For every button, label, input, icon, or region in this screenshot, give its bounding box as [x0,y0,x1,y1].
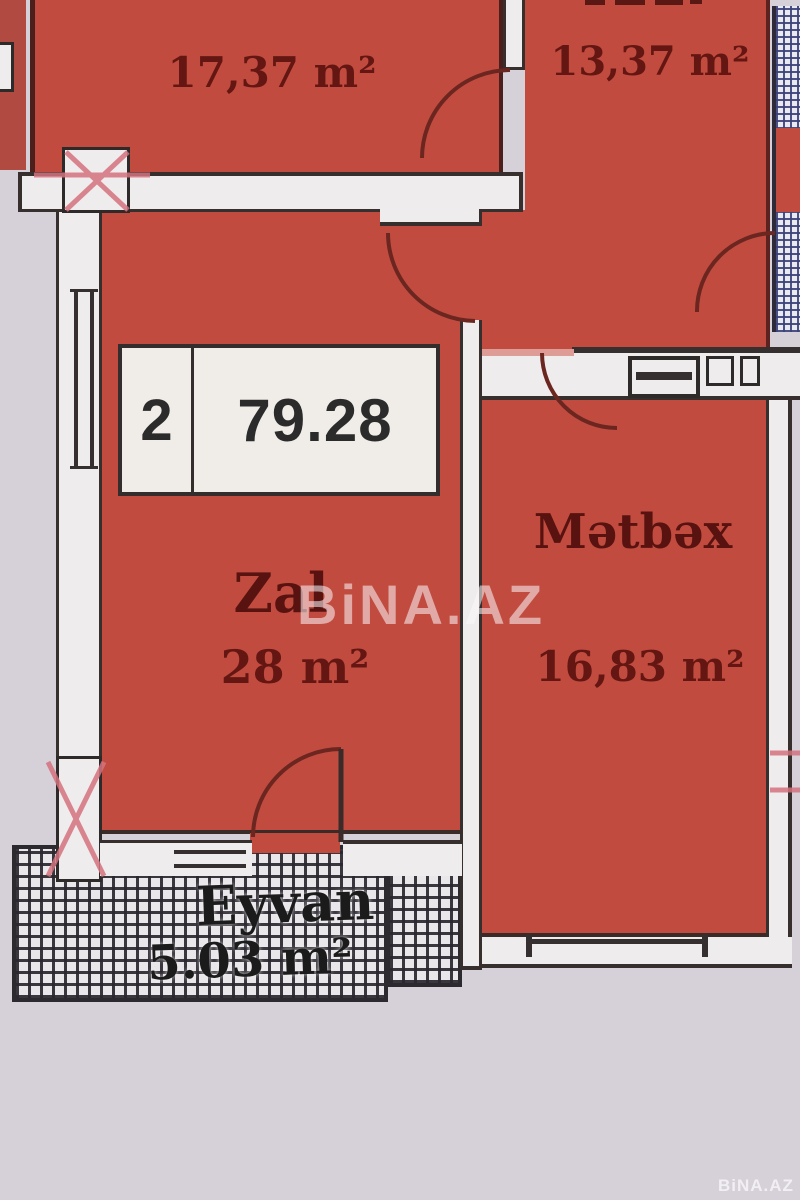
hallway [460,210,770,353]
label-living-area: 28 m² [221,644,370,690]
vent-shaft-small2 [740,356,760,386]
wall-kitchen-top-edge [572,347,800,353]
wall-kitchen-right [766,400,792,968]
window-kitchen-bottom-tick-left [526,933,532,957]
watermark-corner: BiNA.AZ [718,1176,794,1196]
kitchen-door-opening-marker [482,349,574,356]
floor-plan: 17,37 m² 13,37 m² Zal 28 m² Mətbəx 16,83… [0,0,800,1200]
unit-room-count: 2 [122,348,194,492]
label-bedroom-top-left-area: 17,37 m² [168,52,377,94]
wall-joint-top-left [62,147,130,213]
label-balcony-name: Eyvan [195,873,375,933]
side-balcony-wall-segment [776,128,800,212]
window-kitchen-bottom-line [530,939,706,944]
window-kitchen-bottom-tick-right [702,933,708,957]
wall-between-bedrooms [503,0,525,70]
vent-shaft-large-bar [636,372,692,380]
vent-shaft-small1 [706,356,734,386]
label-balcony-area: 5.03 m² [147,932,354,987]
wall-joint-bottom-left [56,756,102,882]
wall-living-bottom-left [100,840,252,876]
window-top-left-notch [0,42,14,92]
window-left-wall-line2 [90,292,94,468]
room-bedroom-top-right [525,0,770,212]
window-left-wall-cap-top [70,289,98,292]
label-kitchen-name: Mətbəx [534,508,733,556]
wall-living-kitchen [460,320,482,970]
room-living [102,212,460,834]
label-kitchen-area: 16,83 m² [536,646,745,688]
window-left-wall-cap-bottom [70,466,98,469]
window-living-bottom-line1 [174,850,246,854]
eyvan-door-opening [250,833,340,853]
unit-info-box: 2 79.28 [118,344,440,496]
window-left-wall-line1 [74,292,78,468]
watermark-center: BiNA.AZ [297,572,545,637]
window-living-bottom-line2 [174,864,246,868]
unit-total-area: 79.28 [194,348,436,492]
wall-corridor-step [380,209,482,226]
label-bedroom-top-right-area: 13,37 m² [550,42,749,82]
